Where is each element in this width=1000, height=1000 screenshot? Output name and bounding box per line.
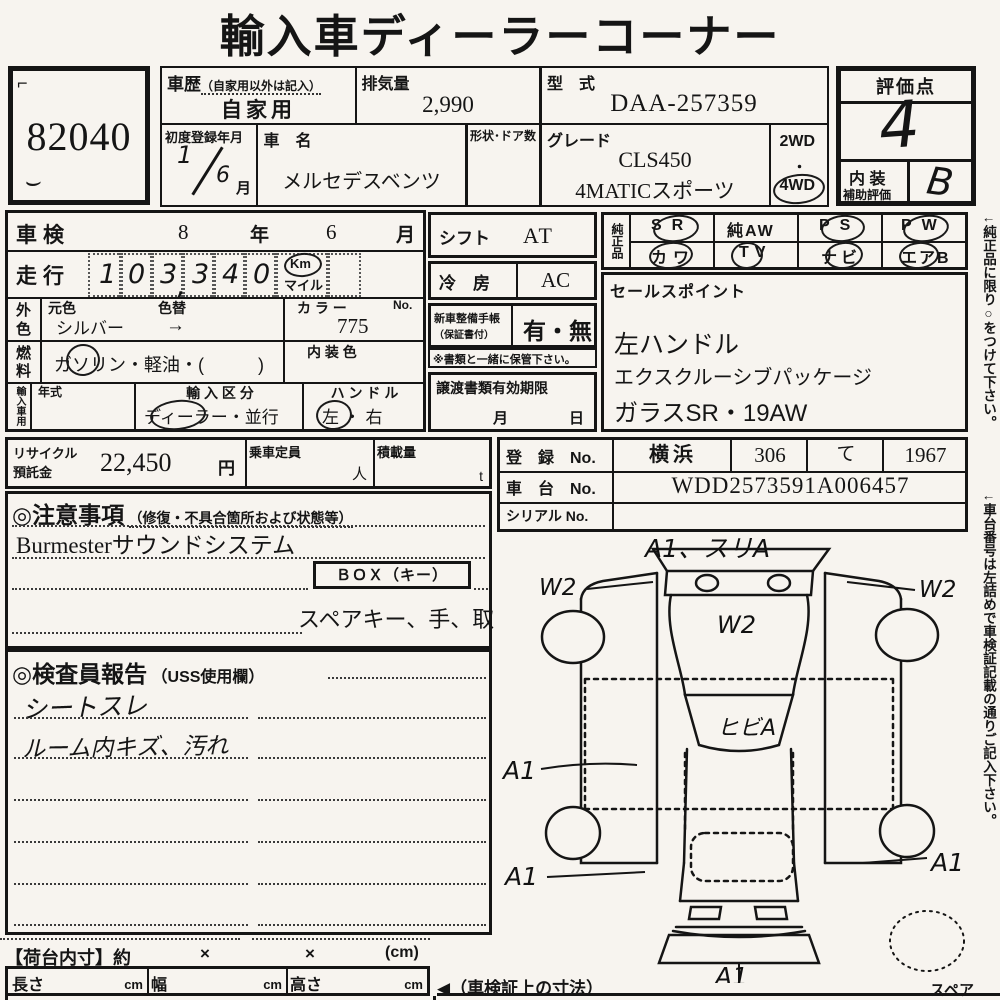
genuine-item: PS <box>819 217 860 235</box>
history-label: 車歴 <box>167 75 201 94</box>
tail-band <box>676 901 802 927</box>
sales-points-label: セールスポイント <box>610 278 746 302</box>
sales-point-line: エクスクルーシブパッケージ <box>614 361 872 390</box>
handle-value: 左 ・ 右 <box>322 403 382 428</box>
side-note-genuine: ←純正品に限り○をつけて下さい。 <box>977 210 999 480</box>
genuine-item: 純AW <box>727 217 775 241</box>
ruled-line <box>14 924 248 926</box>
interior-score-value: B <box>924 158 956 205</box>
color-row: 外 色 元色 シルバー 色替 → カ ラ ー No. 775 <box>8 297 423 342</box>
keep-note: ※書類と一緒に保管下さい。 <box>433 351 576 367</box>
first-registration-month-suffix: 月 <box>236 177 251 198</box>
shift-value: AT <box>523 223 554 249</box>
import-class-label: 輸 入 区 分 <box>136 383 304 403</box>
cargo-dims-table: 長さ cm 幅 cm 高さ cm <box>5 966 430 996</box>
lot-number-box: ⌐ 82040 ⌣ <box>8 66 150 205</box>
orig-color-value: シルバー <box>56 314 124 339</box>
caution-line-2: スペアキー、手、取 <box>298 602 494 634</box>
handle-label: ハ ン ド ル <box>304 383 425 403</box>
ruled-line <box>258 924 486 926</box>
transfer-docs-box: 譲渡書類有効期限 月 日 <box>428 372 597 432</box>
key-box-label: ＢＯＸ（キー） <box>336 567 448 584</box>
wheel-rear-left <box>546 807 600 859</box>
car-name-label: 車 名 <box>264 127 312 151</box>
shift-box: シフト AT <box>428 212 597 258</box>
cargo-height-label: 高さ <box>290 971 322 995</box>
doors-open-outline <box>585 679 893 809</box>
reg-class: 306 <box>754 443 786 467</box>
shaken-label: 車検 <box>16 219 70 249</box>
damage-note-w2-left: W2 <box>539 575 576 601</box>
drive-dot: ・ <box>793 157 807 177</box>
capacity-unit: 人 <box>352 463 367 484</box>
cargo-unit: (cm) <box>385 944 419 962</box>
inspector-header: ◎検査員報告 <box>12 661 147 687</box>
mileage-unit-mile: マイル <box>284 275 323 294</box>
year-type-label: 年式 <box>38 383 62 400</box>
wheel-front-left <box>542 611 604 663</box>
right-panel-top <box>825 573 901 599</box>
grade-cell: グレード CLS450 4MATICスポーツ <box>539 123 771 207</box>
load-label: 積載量 <box>377 442 416 461</box>
mileage-digit: 3 <box>160 259 177 290</box>
left-main-table: 車検 8 年 6 月 走行 1 0 3 3 4 0 , Km マイル <box>5 210 426 432</box>
drive-4wd: 4WD <box>780 177 816 195</box>
ruled-line <box>252 938 430 940</box>
auction-sheet: 輸入車ディーラーコーナー ⌐ 82040 ⌣ 車歴（自家用以外は記入） 自家用 … <box>0 0 1000 1000</box>
partial-row-edge <box>5 996 436 1000</box>
ruled-line <box>14 883 248 885</box>
caution-line-1: Burmesterサウンドシステム <box>16 526 295 560</box>
score-value: 4 <box>876 88 922 165</box>
booklet-label: 新車整備手帳 <box>434 310 500 326</box>
rear-window <box>691 833 793 881</box>
inspector-header-note: （USS使用欄） <box>152 669 265 686</box>
caution-notes-box: ◎注意事項 （修復・不具合箇所および状態等） Burmesterサウンドシステム… <box>5 491 492 649</box>
car-name-value: メルセデスベンツ <box>258 165 466 194</box>
import-class-value: ディーラー・並行 <box>144 403 279 428</box>
mileage-digit: 3 <box>192 259 209 290</box>
color-no-no: No. <box>393 298 412 312</box>
pen-mark: ⌣ <box>23 167 40 198</box>
fuel-value: ガソリン・軽油・( ) <box>54 351 264 377</box>
transfer-month: 月 <box>493 407 508 428</box>
mileage-row: 走行 1 0 3 3 4 0 , Km マイル <box>8 250 423 299</box>
genuine-parts-grid: 純正品 SR 純AW PS PW カワ <box>601 212 968 270</box>
genuine-label: 純正品 <box>604 215 631 267</box>
ruled-line <box>474 588 488 590</box>
damage-note-w2-hood: W2 <box>717 611 756 639</box>
ruled-line <box>12 632 302 634</box>
serial-no-label: シリアル No. <box>506 506 610 526</box>
mileage-digit: 0 <box>128 259 145 290</box>
displacement-cell: 排気量 2,990 <box>355 66 542 125</box>
ruled-line <box>258 799 486 801</box>
history-note: （自家用以外は記入） <box>201 79 321 95</box>
transfer-day: 日 <box>569 407 584 428</box>
mileage-digit: 1 <box>99 259 116 290</box>
ruled-line <box>14 757 248 759</box>
shaken-row: 車検 8 年 6 月 <box>8 213 423 252</box>
shape-doors-cell: 形状･ドア数 <box>465 123 542 207</box>
keep-note-strip: ※書類と一緒に保管下さい。 <box>428 348 597 368</box>
spare-tire-circle <box>890 911 964 971</box>
damage-note-a1-right: A1 <box>929 848 964 877</box>
ac-value: AC <box>541 268 570 293</box>
shape-doors-label: 形状･ドア数 <box>470 127 536 144</box>
shaken-year: 8 <box>178 220 189 245</box>
drive-type-cell: 2WD ・ 4WD <box>769 123 830 207</box>
cargo-length-cm: cm <box>124 977 143 992</box>
capacity-label: 乗車定員 <box>249 442 301 461</box>
model-code-value: DAA-257359 <box>541 90 827 118</box>
ruled-line <box>258 841 486 843</box>
score-box: 評価点 4 内 装 補助評価 B <box>836 66 976 206</box>
grade-line1: CLS450 <box>541 147 769 173</box>
cargo-width-label: 幅 <box>151 971 167 995</box>
mileage-digit: 4 <box>222 259 239 290</box>
registration-table: 登 録 No. 横浜 306 て 1967 車 台 No. WDD2573591… <box>497 437 968 532</box>
recycle-label: リサイクル <box>13 443 77 462</box>
fuel-label: 料 <box>16 360 31 381</box>
chassis-no-value: WDD2573591A006457 <box>671 473 909 498</box>
wheel-front-right <box>876 609 938 661</box>
ac-label: 冷 房 <box>439 269 490 294</box>
damage-note-a1-left: A1 <box>501 756 536 785</box>
reg-kana: て <box>836 444 855 465</box>
load-unit: t <box>479 468 483 484</box>
cargo-length-label: 長さ <box>12 971 44 995</box>
reg-area: 横浜 <box>649 444 697 466</box>
import-row: 輸入車用 年式 輸 入 区 分 ディーラー・並行 ハ ン ド ル 左 ・ 右 <box>8 382 423 429</box>
recycle-unit: 円 <box>218 454 235 479</box>
shaken-month-suffix: 月 <box>396 220 415 247</box>
damage-note-a1-bottom: A1 <box>713 962 748 983</box>
mileage-digit: 0 <box>253 259 270 290</box>
recycle-value: 22,450 <box>100 448 172 478</box>
grade-line2: 4MATICスポーツ <box>541 175 769 205</box>
recycle-label2: 預託金 <box>13 462 52 481</box>
mileage-unit-km: Km <box>290 256 311 271</box>
wheel-rear-right <box>880 805 934 857</box>
history-value: 自家用 <box>162 94 355 124</box>
shaken-year-suffix: 年 <box>250 220 269 247</box>
ruled-line <box>12 588 308 590</box>
cargo-x2: × <box>305 944 315 964</box>
side-note-chassis: ←車台番号は左詰めで車検証記載の通りご記入下さい。 <box>977 488 999 918</box>
service-booklet-box: 新車整備手帳 （保証書付） 有・無 <box>428 303 597 348</box>
booklet-sub-label: （保証書付） <box>434 326 494 341</box>
import-label: 輸入車用 <box>8 382 32 429</box>
sales-point-line: ガラスSR・19AW <box>614 393 807 428</box>
color-label: 色 <box>16 318 31 339</box>
interior-color-label: 内 装 色 <box>307 342 357 362</box>
tail-light <box>689 907 721 919</box>
ruled-line <box>258 757 486 759</box>
lot-number: 82040 <box>13 113 145 160</box>
annotation-line <box>541 764 637 769</box>
spare-label: スペア <box>930 979 974 1000</box>
model-code-cell: 型 式 DAA-257359 <box>539 66 829 125</box>
cargo-width-cm: cm <box>263 977 282 992</box>
ruled-line <box>258 883 486 885</box>
damage-note-top: A1、スリA <box>643 534 770 563</box>
transfer-label: 譲渡書類有効期限 <box>436 378 548 398</box>
genuine-item: カワ <box>651 244 695 268</box>
rear-bumper <box>659 935 819 963</box>
mileage-label: 走行 <box>16 260 70 290</box>
interior-sub-label: 補助評価 <box>843 186 891 203</box>
genuine-item: ナビ <box>821 244 861 268</box>
damage-note-a1-left-lower: A1 <box>503 862 538 891</box>
ruled-line <box>12 557 485 559</box>
inspector-report-box: ◎検査員報告 （USS使用欄） シートスレ ルーム内キズ、汚れ <box>5 649 492 935</box>
cargo-x1: × <box>200 944 210 964</box>
tail-light <box>755 907 787 919</box>
booklet-value: 有・無 <box>523 312 592 346</box>
ruled-line <box>328 677 486 679</box>
color-no-value: 775 <box>337 314 369 339</box>
ruled-line <box>14 799 248 801</box>
history-cell: 車歴（自家用以外は記入） 自家用 <box>160 66 357 125</box>
reg-num: 1967 <box>905 443 947 467</box>
reg-no-label: 登 録 No. <box>506 444 610 468</box>
score-interior-row: 内 装 補助評価 B <box>841 159 971 204</box>
genuine-item: エアB <box>901 244 951 268</box>
first-registration-year: 1 <box>177 141 192 169</box>
genuine-item: SR <box>651 217 693 235</box>
key-box: ＢＯＸ（キー） <box>313 561 471 589</box>
shaken-month: 6 <box>326 220 337 245</box>
fuel-row: 燃 料 ガソリン・軽油・( ) 内 装 色 <box>8 340 423 384</box>
ac-box: 冷 房 AC <box>428 261 597 300</box>
annotation-line <box>847 582 915 590</box>
page-title: 輸入車ディーラーコーナー <box>150 0 850 65</box>
pen-mark: ⌐ <box>17 73 28 94</box>
genuine-item: PW <box>901 217 947 235</box>
car-name-cell: 車 名 メルセデスベンツ <box>256 123 468 207</box>
color-label: 外 <box>16 299 31 320</box>
ruled-line <box>14 717 248 719</box>
recycle-row: リサイクル 預託金 22,450 円 乗車定員 人 積載量 t <box>5 437 492 489</box>
genuine-item: TV <box>739 244 771 262</box>
ruled-line <box>258 717 486 719</box>
first-registration-cell: 初度登録年月 1 6 月 <box>160 123 258 207</box>
displacement-label: 排気量 <box>362 70 410 94</box>
sales-points-box: セールスポイント 左ハンドル エクスクルーシブパッケージ ガラスSR・19AW <box>601 272 968 432</box>
annotation-line <box>547 872 645 877</box>
trunk-left-edge <box>680 863 684 901</box>
displacement-value: 2,990 <box>357 92 540 118</box>
cargo-height-cm: cm <box>404 977 423 992</box>
car-damage-diagram: A1、スリA W2 W2 W2 ヒビA A1 A1 A1 A1 <box>495 533 975 983</box>
caution-line-1-text: Burmesterサウンドシステム <box>16 533 295 558</box>
headlight <box>696 575 718 591</box>
drive-2wd: 2WD <box>780 133 816 151</box>
shift-label: シフト <box>439 224 490 249</box>
inspector-note: シートスレ <box>21 686 147 726</box>
recolor-arrow: → <box>166 315 185 337</box>
damage-note-w2-right: W2 <box>919 577 956 603</box>
bottom-rule <box>437 993 1000 996</box>
headlight <box>768 575 790 591</box>
trunk-right-edge <box>794 863 798 901</box>
ruled-line <box>0 938 240 940</box>
chassis-no-label: 車 台 No. <box>506 475 610 499</box>
damage-note-windshield: ヒビA <box>717 716 776 741</box>
ruled-line <box>14 841 248 843</box>
sales-point-line: 左ハンドル <box>614 325 739 361</box>
first-registration-month: 6 <box>216 163 230 188</box>
